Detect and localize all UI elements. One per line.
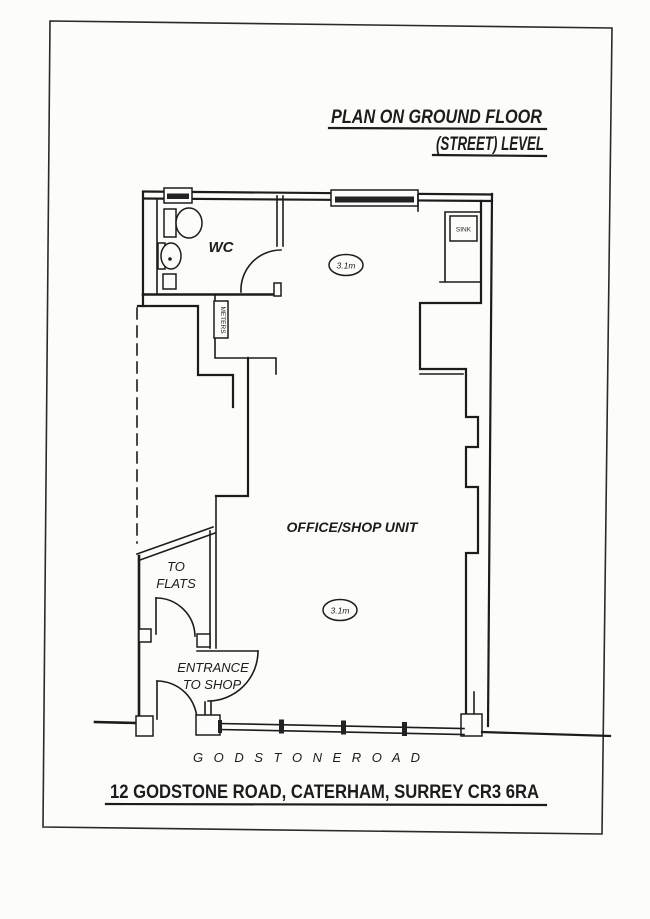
meters-label: METERS [219, 306, 226, 334]
glazing-mullion [402, 722, 407, 736]
wc-duct [163, 274, 176, 289]
entrance-label-1: ENTRANCE [177, 660, 249, 675]
shop-entrance: ENTRANCE TO SHOP [157, 651, 482, 736]
address-underline [106, 804, 546, 805]
meters-cupboard: METERS [214, 301, 228, 338]
title-line2: (STREET) LEVEL [436, 134, 544, 155]
shopfront-pier-right [461, 714, 482, 736]
street-pier-left [136, 716, 153, 736]
office-shop-unit-label: OFFICE/SHOP UNIT [287, 519, 419, 535]
toilet-symbol [164, 208, 202, 238]
svg-text:3.1m: 3.1m [337, 261, 356, 271]
dimension-lower: 3.1m [323, 600, 357, 621]
glazing-mullion [341, 721, 346, 735]
title-underline-1 [329, 128, 546, 129]
wc-door-jamb [274, 283, 281, 296]
shop-door-swing [208, 651, 258, 701]
to-flats-label-1: TO [167, 559, 185, 574]
flats-door-jamb [139, 629, 151, 642]
entrance-label-2: TO SHOP [183, 677, 242, 692]
shopfront-glazing [218, 720, 464, 737]
basin-symbol [158, 243, 181, 269]
dimension-upper: 3.1m [329, 255, 363, 276]
svg-text:3.1m: 3.1m [331, 606, 350, 616]
address-line: 12 GODSTONE ROAD, CATERHAM, SURREY CR3 6… [110, 781, 539, 803]
to-flats-label-2: FLATS [156, 576, 196, 591]
lobby-door-jamb [197, 634, 210, 647]
wc-label: WC [209, 239, 235, 256]
title-underline-2 [433, 155, 546, 156]
sink-label: SINK [456, 227, 472, 234]
title-line1: PLAN ON GROUND FLOOR [331, 107, 542, 128]
window-top-middle [331, 190, 418, 211]
shopfront-pier-left [196, 715, 220, 735]
floor-plan-drawing: PLAN ON GROUND FLOOR (STREET) LEVEL [0, 0, 650, 919]
sink-counter: SINK [440, 212, 481, 282]
scanned-floor-plan-page: PLAN ON GROUND FLOOR (STREET) LEVEL [0, 0, 650, 919]
wc-room: WC [143, 196, 283, 296]
exterior-walls [143, 192, 492, 727]
street-name: G O D S T O N E R O A D [193, 750, 420, 765]
flats-door-swing [156, 598, 195, 636]
glazing-post [218, 720, 222, 733]
glazing-mullion [279, 720, 284, 734]
corridor-walls [137, 296, 276, 543]
window-top-left [164, 188, 192, 203]
